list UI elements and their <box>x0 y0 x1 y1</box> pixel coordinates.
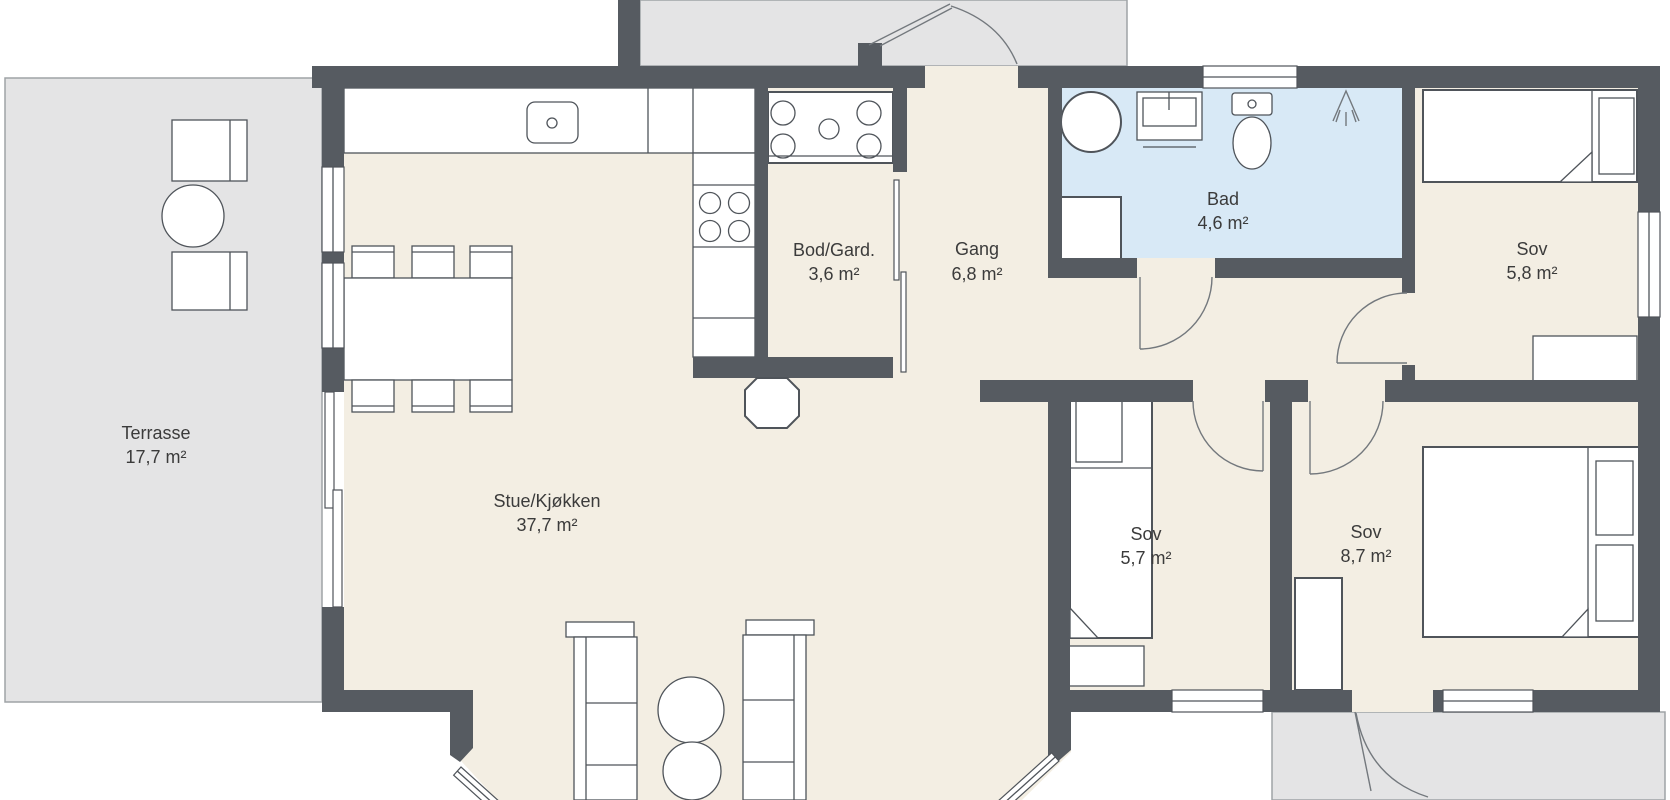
wall-gang-bad <box>1048 88 1062 258</box>
label-bod-area: 3,6 m² <box>808 264 859 284</box>
label-sov-top: Sov <box>1516 239 1547 259</box>
label-terrasse: Terrasse <box>121 423 190 443</box>
sov-top-door-opening <box>1402 293 1415 365</box>
label-stue-area: 37,7 m² <box>516 515 577 535</box>
dining-chair <box>412 246 454 278</box>
wall-kitchen-bod <box>755 88 768 357</box>
label-gang: Gang <box>955 239 999 259</box>
label-sov-right: Sov <box>1350 522 1381 542</box>
wall-left <box>322 348 344 392</box>
coffee-table <box>663 742 721 800</box>
label-gang-area: 6,8 m² <box>951 264 1002 284</box>
sofa-armrest <box>746 620 814 635</box>
wall-sov-mid-left <box>1048 402 1070 712</box>
terrace-chair <box>172 252 247 310</box>
wall-left <box>322 252 344 263</box>
sliding-panel <box>333 490 342 607</box>
wall-left <box>322 88 344 167</box>
toilet-icon <box>1232 93 1272 169</box>
terrace-chair <box>172 120 247 181</box>
wall-bottom <box>1433 690 1443 712</box>
label-sov-top-area: 5,8 m² <box>1506 263 1557 283</box>
floor-plan-page: Terrasse 17,7 m² Stue/Kjøkken 37,7 m² Bo… <box>0 0 1670 800</box>
dining-chair <box>352 246 394 278</box>
pillow <box>1596 545 1633 621</box>
dining-chair <box>470 380 512 412</box>
terrace-area <box>5 78 322 702</box>
sofa-armrest <box>566 622 634 637</box>
bathroom-door-opening <box>1137 258 1215 278</box>
wall-bottom-left <box>322 690 473 712</box>
wall-between-bedrooms <box>1270 402 1292 712</box>
label-sov-mid-area: 5,7 m² <box>1120 548 1171 568</box>
stove-icon <box>768 92 893 163</box>
sofa-left <box>574 637 637 800</box>
wall-right <box>1638 66 1660 212</box>
washing-machine-icon <box>1061 92 1121 152</box>
dining-chair <box>470 246 512 278</box>
floor-plan-svg: Terrasse 17,7 m² Stue/Kjøkken 37,7 m² Bo… <box>0 0 1670 800</box>
entrance-opening <box>925 66 1018 88</box>
wardrobe <box>1295 578 1342 690</box>
wall-bad-bottom <box>1215 258 1402 278</box>
wall-right <box>1638 317 1660 712</box>
chimney-icon <box>745 378 799 428</box>
wall-bad-bottom <box>1048 258 1137 278</box>
dining-chair <box>352 380 394 412</box>
wall-bod-gang <box>893 88 907 172</box>
sofa-right <box>743 635 806 800</box>
label-terrasse-area: 17,7 m² <box>125 447 186 467</box>
door-hinge-stub <box>858 43 882 67</box>
dining-table <box>344 278 512 380</box>
dining-set <box>344 246 512 412</box>
dining-chair <box>412 380 454 412</box>
wall-bad-sov <box>1402 88 1415 293</box>
wall-hall-bedrooms <box>1265 380 1308 402</box>
bathroom-sink-icon <box>1137 92 1202 147</box>
wall-top-right <box>1297 66 1660 88</box>
porch-wall <box>618 0 640 66</box>
wall-hall-bedrooms <box>980 380 1193 402</box>
kitchen-sink-icon <box>527 102 578 143</box>
toilet-tank <box>1232 93 1272 115</box>
coffee-table <box>658 677 724 743</box>
wall-top-mid <box>1018 66 1203 88</box>
pillow <box>1596 461 1633 535</box>
label-bad: Bad <box>1207 189 1239 209</box>
kitchen-counter-side <box>693 153 755 357</box>
pillow <box>1076 398 1122 462</box>
dresser <box>1068 646 1144 686</box>
sov-right-door-opening <box>1308 380 1385 402</box>
bathroom-cabinet-icon <box>1059 197 1121 260</box>
bod-sliding-door <box>901 272 906 372</box>
pillow <box>1599 98 1634 174</box>
entrance-porch-area <box>640 0 1127 66</box>
wall-hall-bedrooms <box>1385 380 1660 402</box>
bod-sliding-door <box>894 180 899 280</box>
toilet-bowl <box>1233 117 1271 169</box>
wall-living-hall <box>693 357 907 378</box>
label-sov-right-area: 8,7 m² <box>1340 546 1391 566</box>
label-stue: Stue/Kjøkken <box>493 491 600 511</box>
wall-top-left <box>312 66 925 88</box>
sov-mid-door-opening <box>1193 380 1265 402</box>
rear-door-opening <box>1352 690 1433 712</box>
label-bad-area: 4,6 m² <box>1197 213 1248 233</box>
label-bod: Bod/Gard. <box>793 240 875 260</box>
label-sov-mid: Sov <box>1130 524 1161 544</box>
dresser <box>1533 336 1637 382</box>
rear-terrace-area <box>1272 712 1665 800</box>
terrace-table <box>162 185 224 247</box>
